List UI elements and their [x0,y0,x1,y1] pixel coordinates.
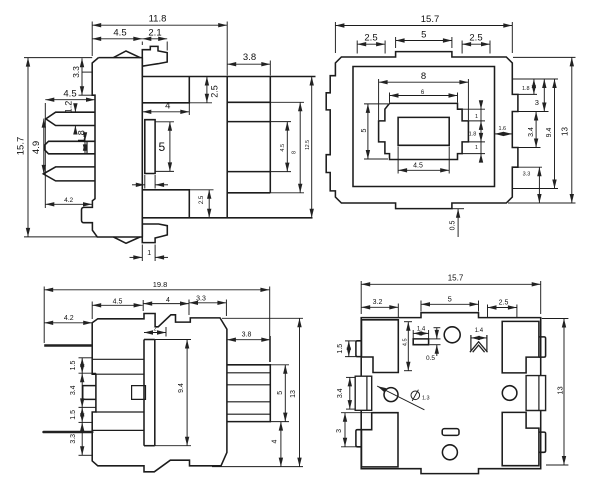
svg-text:4.5: 4.5 [113,299,123,306]
svg-text:4: 4 [166,297,170,304]
svg-text:4.5: 4.5 [402,338,408,346]
svg-text:1.5: 1.5 [70,410,77,420]
svg-text:3.3: 3.3 [523,172,531,178]
svg-text:3.4: 3.4 [528,127,535,137]
svg-text:2.1: 2.1 [148,28,161,39]
svg-text:5: 5 [361,128,368,132]
svg-text:3.8: 3.8 [243,52,256,63]
svg-text:3.4: 3.4 [70,385,77,395]
svg-text:1: 1 [147,250,151,257]
svg-text:5: 5 [277,391,284,395]
svg-text:3.8: 3.8 [242,332,252,339]
svg-text:1.3: 1.3 [422,395,430,401]
svg-text:3.4: 3.4 [337,388,344,398]
svg-text:8: 8 [421,71,426,82]
svg-text:4.5: 4.5 [280,144,286,152]
svg-text:4: 4 [272,439,279,443]
svg-text:1.4: 1.4 [417,326,426,332]
svg-text:12.5: 12.5 [305,140,311,150]
svg-text:11.8: 11.8 [149,14,167,25]
svg-text:2.5: 2.5 [499,299,509,306]
svg-text:5: 5 [421,30,426,41]
svg-text:19.8: 19.8 [153,280,168,289]
svg-text:3.2: 3.2 [373,299,383,306]
svg-text:4.5: 4.5 [63,89,76,100]
svg-text:13: 13 [290,390,297,398]
svg-text:4.5: 4.5 [113,28,126,39]
svg-text:2.5: 2.5 [364,33,377,44]
svg-text:2.5: 2.5 [199,195,205,204]
svg-text:2.5: 2.5 [210,85,220,98]
svg-text:1: 1 [475,145,478,151]
svg-text:1.8: 1.8 [77,130,87,143]
svg-text:1: 1 [475,114,478,120]
svg-text:1.2: 1.2 [64,101,74,114]
svg-text:3.3: 3.3 [71,66,81,78]
svg-text:2: 2 [153,326,156,332]
svg-text:4: 4 [165,101,170,112]
svg-text:2.5: 2.5 [469,33,482,44]
svg-text:3: 3 [535,98,539,107]
svg-text:1.8: 1.8 [522,86,530,92]
svg-text:1.5: 1.5 [337,344,344,354]
svg-text:13: 13 [560,127,569,136]
svg-text:0.5: 0.5 [426,355,435,362]
svg-text:4.5: 4.5 [413,163,423,170]
svg-text:1.8: 1.8 [469,132,477,138]
svg-text:15.7: 15.7 [448,274,464,283]
svg-text:9.4: 9.4 [178,383,185,393]
svg-text:4.2: 4.2 [64,315,74,322]
svg-text:3: 3 [336,429,343,433]
svg-text:15.7: 15.7 [421,14,440,25]
svg-text:5: 5 [158,140,165,154]
svg-text:3.3: 3.3 [70,434,77,444]
svg-text:1.5: 1.5 [70,361,77,371]
svg-text:15.7: 15.7 [16,137,27,156]
svg-text:1.6: 1.6 [498,126,506,132]
svg-text:3.3: 3.3 [196,296,206,303]
svg-text:1.4: 1.4 [475,328,484,334]
svg-text:9.4: 9.4 [546,128,553,138]
svg-text:5: 5 [448,294,452,303]
svg-text:8: 8 [292,151,298,154]
svg-text:0.5: 0.5 [450,221,457,231]
svg-text:4.2: 4.2 [64,197,73,204]
svg-text:4.9: 4.9 [31,141,42,154]
svg-text:13: 13 [556,386,565,394]
